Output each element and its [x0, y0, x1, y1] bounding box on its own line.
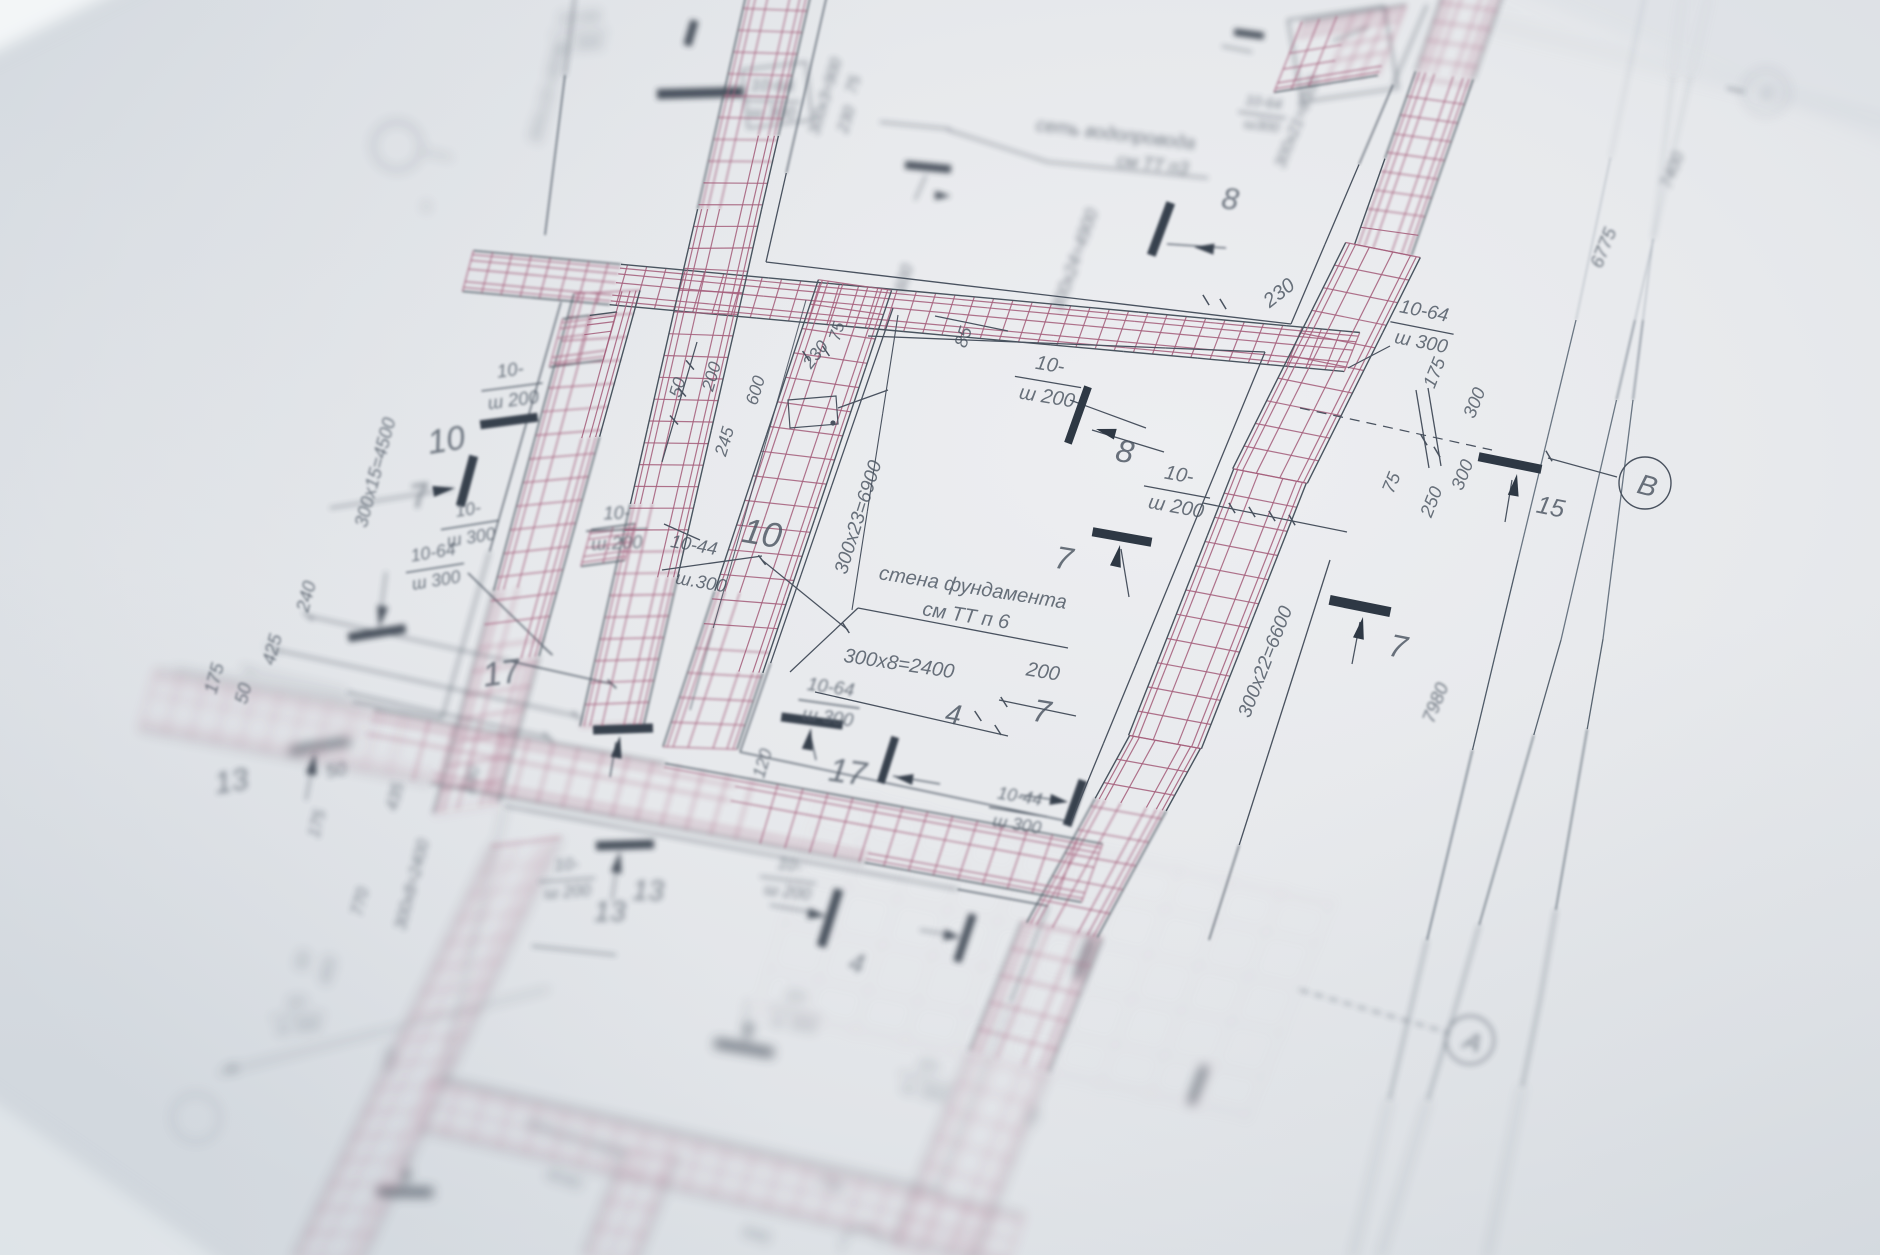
svg-text:13: 13 [212, 763, 251, 801]
svg-text:13: 13 [594, 896, 626, 928]
svg-text:50: 50 [324, 757, 348, 781]
svg-text:10-64: 10-64 [556, 6, 600, 28]
svg-text:10-: 10- [603, 502, 630, 524]
svg-text:10: 10 [739, 511, 785, 556]
svg-text:10-: 10- [454, 497, 482, 521]
svg-text:ш.200: ш.200 [591, 531, 644, 554]
svg-text:10-: 10- [776, 854, 803, 876]
svg-text:ш 200: ш 200 [544, 880, 592, 902]
svg-text:17: 17 [480, 652, 523, 694]
svg-text:13: 13 [632, 875, 664, 907]
svg-text:10-: 10- [286, 993, 310, 1012]
svg-text:ш 300: ш 300 [276, 1017, 322, 1037]
svg-text:10-: 10- [496, 357, 525, 381]
svg-text:10: 10 [425, 419, 468, 461]
svg-text:10-: 10- [554, 854, 580, 875]
svg-text:17: 17 [826, 752, 870, 794]
